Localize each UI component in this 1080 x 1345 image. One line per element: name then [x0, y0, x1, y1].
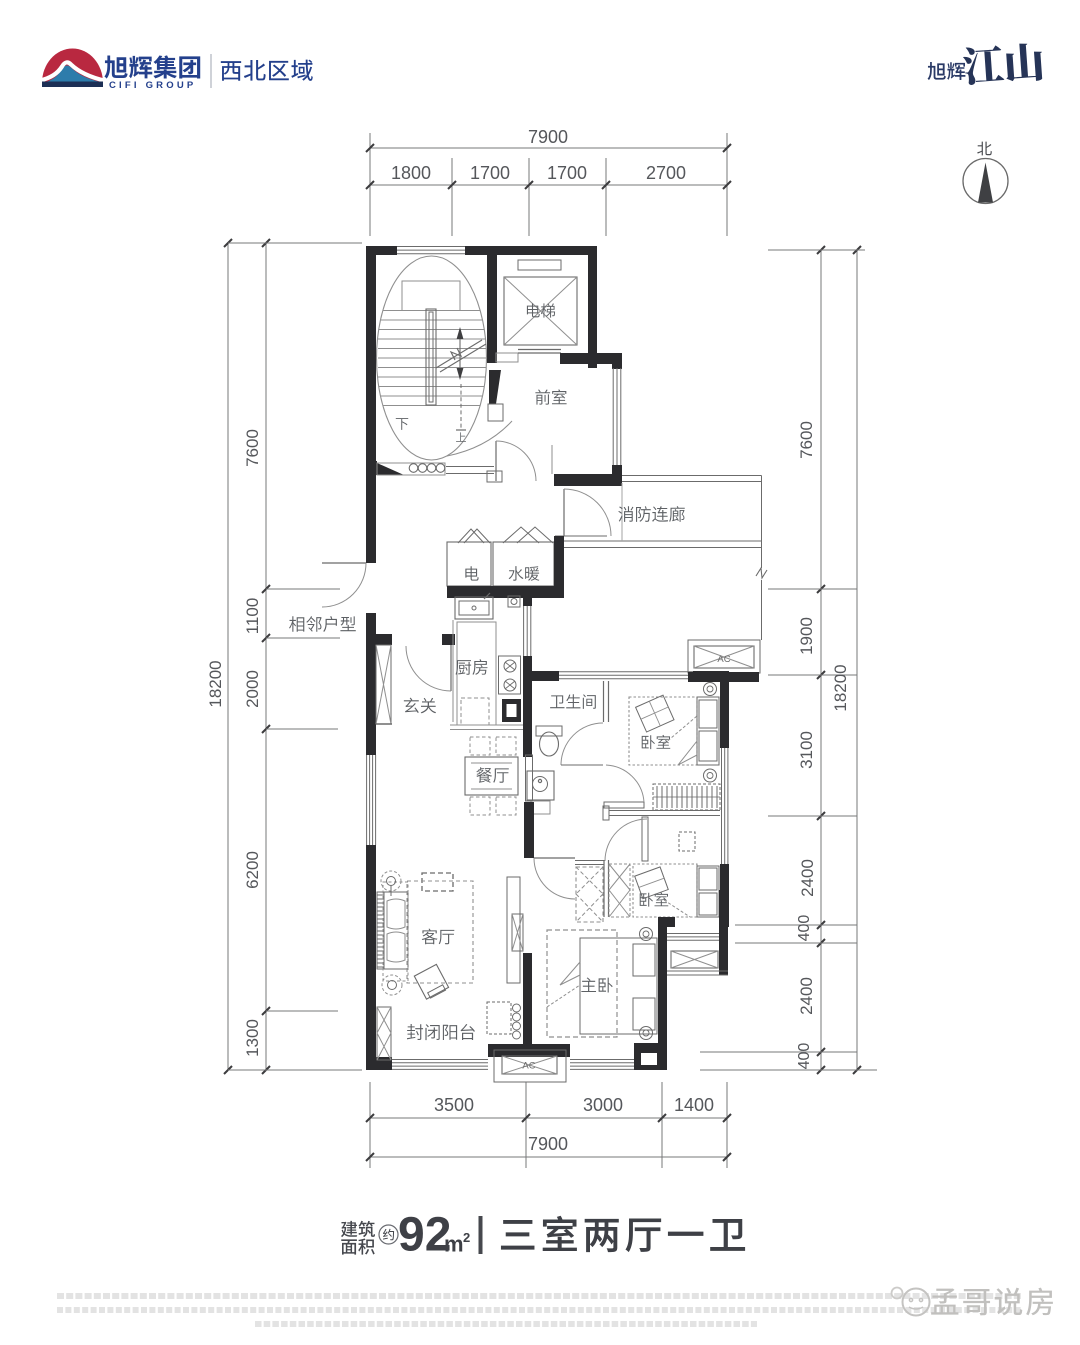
svg-text:1100: 1100: [243, 598, 262, 635]
svg-text:2400: 2400: [798, 859, 817, 897]
svg-text:18200: 18200: [206, 660, 225, 707]
svg-text:AC: AC: [717, 654, 730, 665]
svg-text:1400: 1400: [674, 1095, 714, 1115]
svg-text:1900: 1900: [797, 617, 816, 655]
svg-text:2400: 2400: [797, 977, 816, 1015]
svg-text:m: m: [444, 1232, 464, 1257]
svg-text:1700: 1700: [470, 163, 510, 183]
svg-text:2000: 2000: [243, 670, 262, 708]
svg-text:3100: 3100: [797, 731, 816, 769]
svg-text:1300: 1300: [243, 1019, 262, 1057]
svg-text:3000: 3000: [583, 1095, 623, 1115]
svg-text:2: 2: [463, 1230, 470, 1245]
svg-text:CIFI GROUP: CIFI GROUP: [109, 80, 196, 91]
svg-text:1700: 1700: [547, 163, 587, 183]
svg-text:18200: 18200: [831, 664, 850, 711]
svg-text:2700: 2700: [646, 163, 686, 183]
svg-text:7600: 7600: [243, 429, 262, 467]
svg-text:7600: 7600: [797, 421, 816, 459]
svg-text:7900: 7900: [528, 1134, 568, 1154]
svg-text:7900: 7900: [528, 127, 568, 147]
svg-text:400: 400: [796, 1043, 813, 1070]
svg-text:6200: 6200: [243, 851, 262, 889]
svg-text:3500: 3500: [434, 1095, 474, 1115]
svg-text:1800: 1800: [391, 163, 431, 183]
svg-text:AC: AC: [522, 1061, 535, 1072]
svg-text:400: 400: [796, 915, 813, 942]
